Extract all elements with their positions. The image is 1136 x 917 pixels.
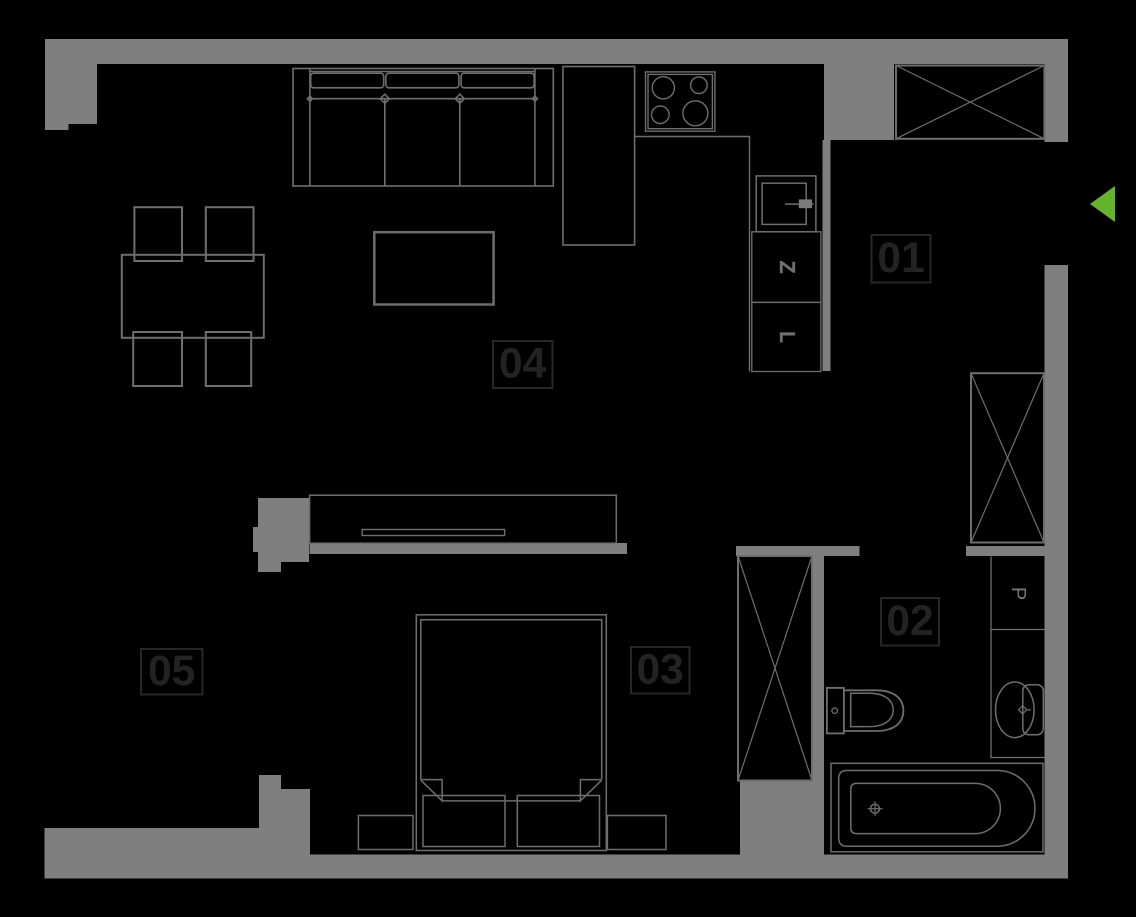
- svg-text:P: P: [1007, 587, 1029, 600]
- svg-text:02: 02: [886, 598, 933, 645]
- svg-text:04: 04: [499, 341, 547, 388]
- svg-text:05: 05: [148, 648, 195, 695]
- svg-text:03: 03: [637, 646, 684, 693]
- svg-text:L: L: [775, 331, 797, 342]
- svg-text:01: 01: [877, 235, 924, 282]
- svg-text:Z: Z: [775, 261, 797, 273]
